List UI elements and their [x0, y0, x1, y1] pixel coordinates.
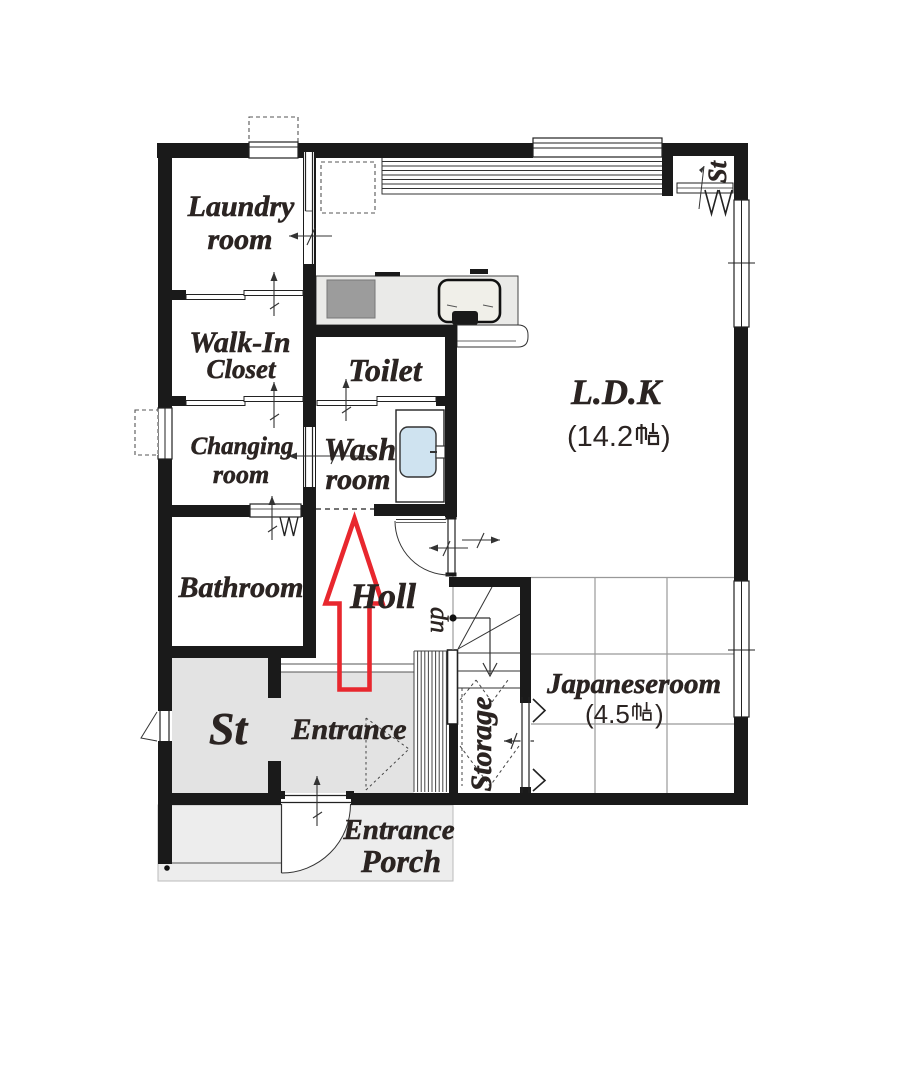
svg-text:room: room	[325, 463, 390, 496]
svg-text:Porch: Porch	[360, 843, 441, 879]
svg-text:up: up	[420, 607, 449, 633]
svg-text:Closet: Closet	[206, 354, 277, 384]
svg-text:Entrance: Entrance	[342, 814, 454, 846]
svg-text:room: room	[207, 223, 272, 256]
svg-text:Laundry: Laundry	[187, 190, 295, 223]
svg-text:Bathroom: Bathroom	[177, 571, 303, 604]
svg-text:Wash: Wash	[324, 431, 396, 467]
svg-text:Japaneseroom: Japaneseroom	[546, 668, 721, 700]
svg-text:Holl: Holl	[349, 576, 416, 616]
svg-text:(4.5: (4.5	[585, 699, 630, 729]
svg-text:L.D.K: L.D.K	[570, 372, 664, 412]
svg-text:Entrance: Entrance	[290, 713, 406, 746]
svg-text:(14.2: (14.2	[567, 421, 633, 453]
svg-text:St: St	[209, 703, 249, 754]
svg-text:Changing: Changing	[191, 433, 294, 460]
svg-text:): )	[661, 421, 671, 453]
svg-text:): )	[655, 699, 664, 729]
svg-text:Storage: Storage	[465, 696, 498, 791]
svg-text:Toilet: Toilet	[348, 352, 423, 388]
svg-text:room: room	[213, 460, 269, 489]
svg-text:St: St	[703, 160, 732, 182]
